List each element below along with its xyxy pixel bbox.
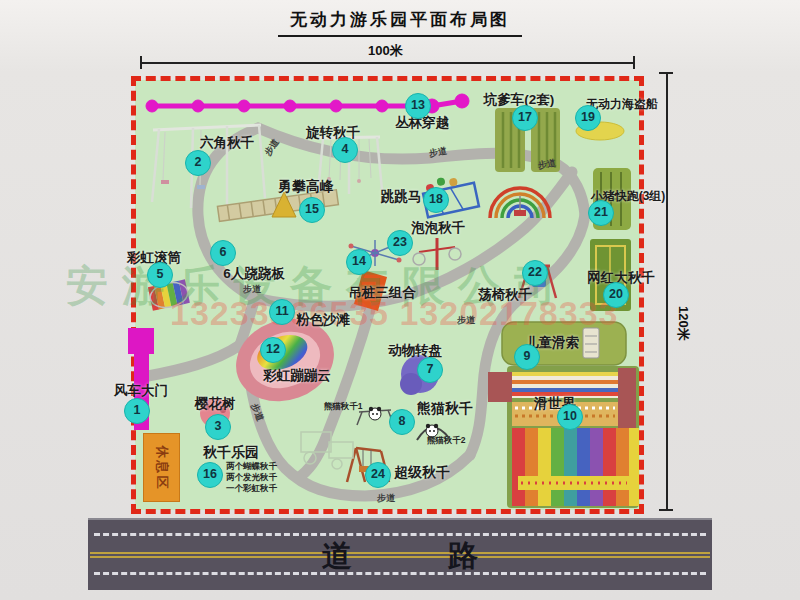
attraction-badge-23: 23: [387, 230, 413, 256]
dimension-tick: [140, 56, 142, 69]
footpath-label: 步道: [243, 283, 261, 296]
attraction-badge-19: 19: [575, 105, 601, 131]
attraction-badge-13: 13: [405, 93, 431, 119]
attraction-badge-12: 12: [260, 337, 286, 363]
attraction-label-24: 超级秋千: [394, 464, 450, 482]
dimension-height-label: 120米: [674, 306, 692, 341]
attraction-badge-5: 5: [147, 262, 173, 288]
panda-swing-sub-label: 熊猫秋千2: [427, 435, 466, 447]
attraction-badge-16: 16: [197, 462, 223, 488]
attraction-badge-24: 24: [365, 462, 391, 488]
road-label: 道 路: [88, 536, 712, 577]
dimension-height-line: [666, 72, 668, 510]
dimension-tick: [633, 56, 635, 69]
attraction-label-12: 彩虹蹦蹦云: [263, 367, 331, 385]
attraction-label-8: 熊猫秋千: [417, 400, 473, 418]
rest-area: 休息区: [143, 433, 180, 502]
footpath-label: 步道: [457, 314, 475, 327]
attraction-label-23: 泡泡秋千: [411, 219, 465, 237]
attraction-badge-3: 3: [205, 414, 231, 440]
dimension-tick: [659, 509, 673, 511]
attraction-badge-7: 7: [417, 357, 443, 383]
dimension-tick: [659, 72, 673, 74]
attraction-label-22: 荡椅秋千: [478, 286, 532, 304]
attraction-badge-9: 9: [514, 344, 540, 370]
dimension-width-line: [140, 62, 634, 64]
attraction-badge-17: 17: [512, 105, 538, 131]
attraction-label-14: 吊桩三组合: [348, 284, 416, 302]
dimension-width-label: 100米: [368, 42, 403, 60]
attraction-badge-1: 1: [124, 398, 150, 424]
attraction-badge-15: 15: [299, 197, 325, 223]
panda-swing-sub-label: 熊猫秋千1: [324, 401, 363, 413]
attraction-label-1: 风车大门: [114, 382, 168, 400]
attraction-badge-6: 6: [210, 240, 236, 266]
attraction-label-3: 樱花树: [195, 395, 236, 413]
attraction-label-6: 6人跷跷板: [223, 265, 285, 283]
attraction-sub-label: 一个彩虹秋千: [226, 483, 277, 495]
footpath-label: 步道: [377, 492, 395, 505]
attraction-label-2: 六角秋千: [200, 134, 254, 152]
rainbow-slide-stripes: [512, 428, 639, 506]
attraction-badge-8: 8: [389, 409, 415, 435]
windmill-gate-icon: [128, 328, 154, 354]
page-title: 无动力游乐园平面布局图: [0, 8, 800, 37]
attraction-label-11: 粉色沙滩: [296, 311, 350, 329]
attraction-label-16: 秋千乐园: [203, 444, 259, 462]
attraction-badge-11: 11: [269, 299, 295, 325]
attraction-badge-18: 18: [423, 187, 449, 213]
attraction-badge-20: 20: [603, 282, 629, 308]
attraction-badge-10: 10: [557, 404, 583, 430]
road: 道 路: [88, 518, 712, 590]
attraction-badge-2: 2: [185, 150, 211, 176]
attraction-badge-21: 21: [588, 200, 614, 226]
attraction-label-15: 勇攀高峰: [278, 178, 334, 196]
attraction-badge-22: 22: [522, 260, 548, 286]
attraction-label-18: 跳跳马: [381, 188, 422, 206]
attraction-badge-14: 14: [346, 249, 372, 275]
attraction-badge-4: 4: [332, 137, 358, 163]
slide-world-icon: [488, 366, 639, 508]
